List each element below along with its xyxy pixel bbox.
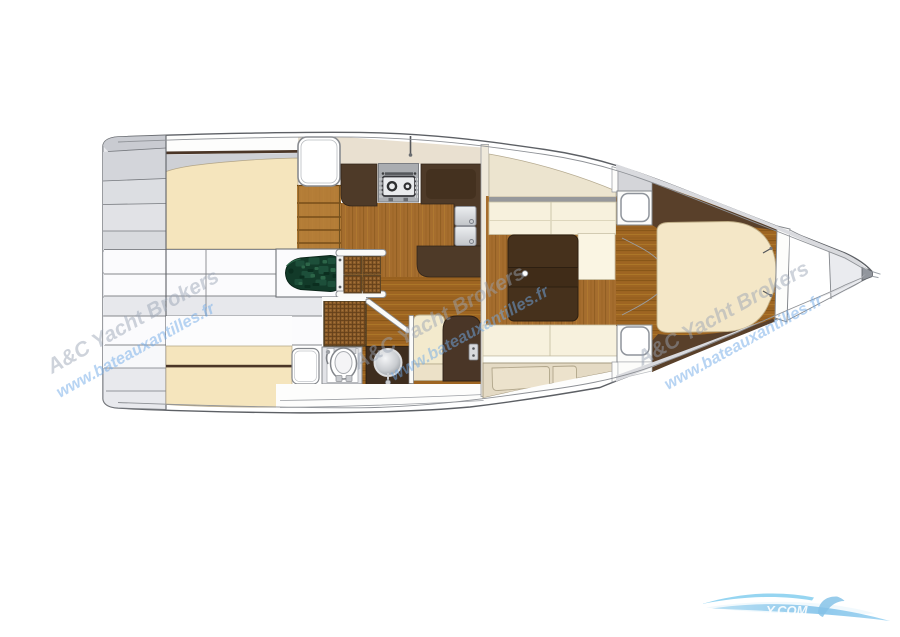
svg-text:Y.COM: Y.COM [766, 603, 809, 618]
